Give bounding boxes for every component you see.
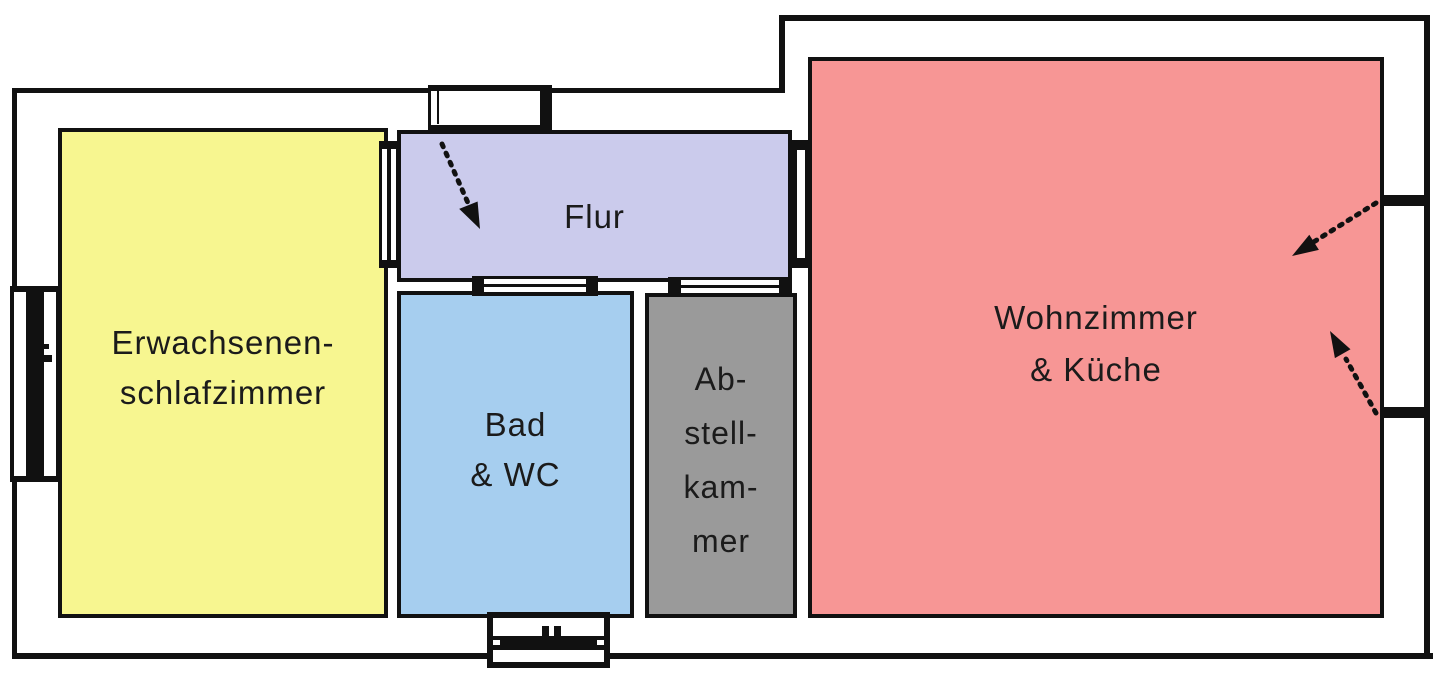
outer-wall-step bbox=[779, 15, 785, 93]
window-bottom-gap-right bbox=[597, 640, 604, 645]
outer-wall-right bbox=[1424, 15, 1430, 659]
outer-wall-bottom bbox=[12, 653, 1433, 659]
right-wall-stub-lower bbox=[1380, 407, 1425, 418]
room-bedroom-label-line2: schlafzimmer bbox=[58, 368, 388, 418]
window-bottom-gap-left bbox=[493, 640, 500, 645]
window-left-glass1 bbox=[14, 292, 26, 476]
door-hallway-storage-glass1 bbox=[681, 280, 779, 285]
room-storage-label-line3: kam- bbox=[645, 460, 797, 514]
door-hallway-living-glass bbox=[797, 150, 805, 258]
room-storage-label-line1: Ab- bbox=[645, 352, 797, 406]
window-bottom-handle2 bbox=[554, 626, 561, 636]
room-bathroom-label-line1: Bad bbox=[397, 400, 634, 450]
window-left-handle bbox=[44, 355, 52, 362]
room-bedroom-label: Erwachsenen- schlafzimmer bbox=[58, 318, 388, 418]
door-bedroom-hallway-glass1 bbox=[382, 149, 387, 260]
room-living-label: Wohnzimmer & Küche bbox=[808, 292, 1384, 396]
room-hallway-label: Flur bbox=[397, 192, 792, 242]
outer-wall-top-left bbox=[12, 88, 782, 93]
window-bottom-handle1 bbox=[542, 626, 549, 636]
room-living-label-line2: & Küche bbox=[808, 344, 1384, 396]
room-living-label-line1: Wohnzimmer bbox=[808, 292, 1384, 344]
window-left-glass2 bbox=[44, 292, 56, 476]
entrance-door-inner-line bbox=[437, 91, 439, 124]
outer-wall-top-right bbox=[779, 15, 1430, 21]
room-bathroom-label: Bad & WC bbox=[397, 400, 634, 500]
room-storage-label: Ab- stell- kam- mer bbox=[645, 352, 797, 568]
right-wall-stub-upper bbox=[1380, 195, 1425, 206]
floor-plan: Erwachsenen- schlafzimmer Flur Bad & WC … bbox=[0, 0, 1440, 676]
room-bathroom-label-line2: & WC bbox=[397, 450, 634, 500]
window-left-handle2 bbox=[44, 344, 49, 349]
entrance-door-icon bbox=[428, 85, 552, 130]
window-bottom-glass-bottom bbox=[493, 650, 604, 662]
room-hallway-label-line1: Flur bbox=[397, 192, 792, 242]
room-bedroom-label-line1: Erwachsenen- bbox=[58, 318, 388, 368]
room-storage-label-line4: mer bbox=[645, 514, 797, 568]
door-hallway-bathroom-glass1 bbox=[484, 279, 586, 284]
door-hallway-bathroom-glass2 bbox=[484, 287, 586, 292]
door-hallway-storage-glass2 bbox=[681, 288, 779, 293]
door-bedroom-hallway-glass2 bbox=[391, 149, 396, 260]
room-storage-label-line2: stell- bbox=[645, 406, 797, 460]
